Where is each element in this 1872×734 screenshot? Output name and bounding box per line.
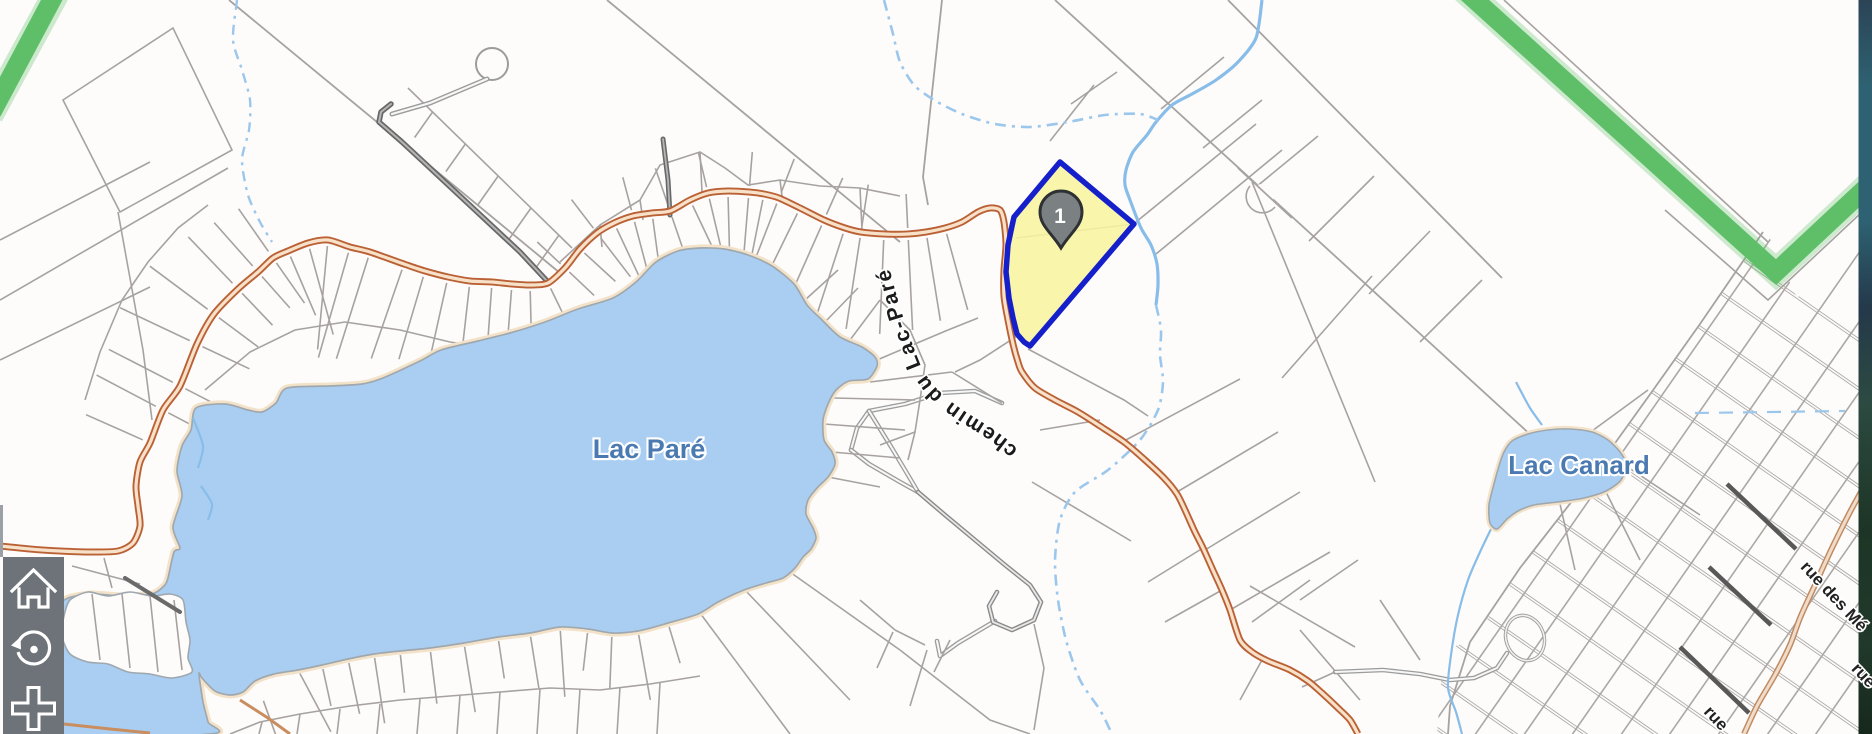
svg-text:1: 1 xyxy=(1054,205,1066,228)
svg-text:Lac Paré: Lac Paré xyxy=(593,434,706,464)
svg-text:Lac Canard: Lac Canard xyxy=(1508,450,1650,480)
